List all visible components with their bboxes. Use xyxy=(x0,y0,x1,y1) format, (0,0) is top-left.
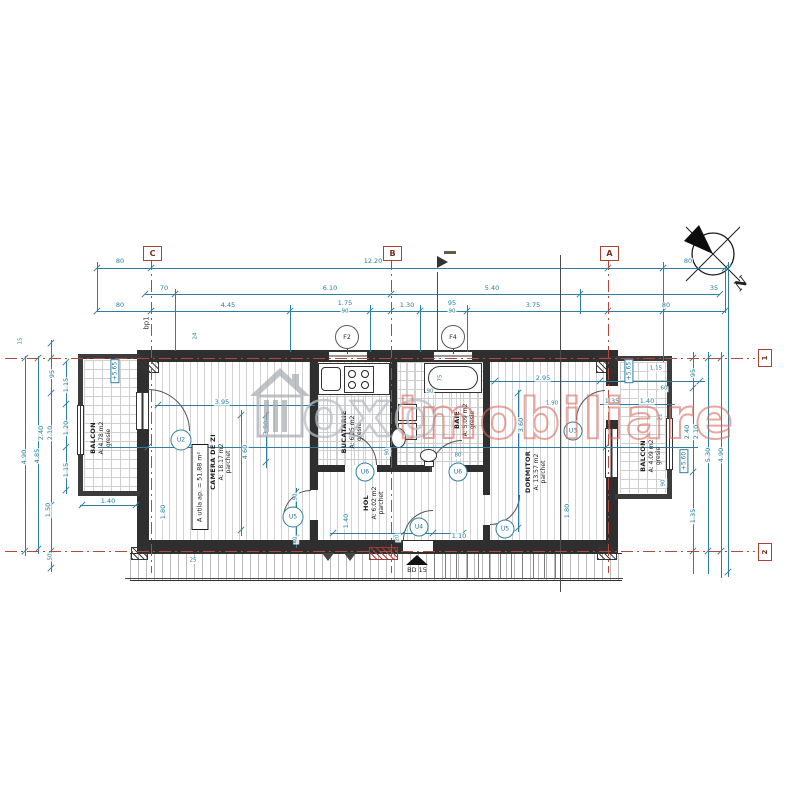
grid-axis-2: 2 xyxy=(758,543,772,561)
level-marker: +5.65 xyxy=(110,359,119,383)
wall-hatch xyxy=(597,547,617,560)
section-flag-dash xyxy=(444,251,456,254)
dim-line xyxy=(175,289,176,351)
entrance-label: BD 15 xyxy=(407,567,427,574)
dim-label: 4.45 xyxy=(220,302,236,309)
room-finish: gresie xyxy=(105,429,112,447)
grid-axis-a: A xyxy=(600,246,619,261)
dim-label: 24 xyxy=(193,332,199,341)
dim-label: 1.80 xyxy=(564,503,571,519)
room-area: A: 13.57 m2 xyxy=(533,454,540,491)
dim-label: 2.40 xyxy=(38,425,45,441)
dim-label: 90 xyxy=(341,309,350,315)
opening-tag: U6 xyxy=(449,463,468,482)
dim-label: 2.10 xyxy=(47,425,54,441)
section-flag-icon xyxy=(437,256,448,268)
grid-axis-1: 1 xyxy=(758,349,772,367)
dim-line xyxy=(125,578,623,579)
dim-label: 1.20 xyxy=(63,420,70,436)
room-finish: parchet xyxy=(540,461,547,484)
wall xyxy=(137,350,149,553)
dim-label: 95 xyxy=(447,300,457,307)
dim-label: 4.85 xyxy=(34,448,41,464)
dim-label: 6.10 xyxy=(322,285,338,292)
window-f2 xyxy=(328,351,368,361)
room-name: BALCON xyxy=(90,422,98,454)
parapet xyxy=(615,494,672,499)
dim-label: 90 xyxy=(293,493,299,502)
balcony-window-left xyxy=(77,405,84,455)
dim-label: 20 xyxy=(395,534,401,543)
dim-label: 4.90 xyxy=(21,449,28,465)
opening-tag: U4 xyxy=(410,518,429,537)
dim-label: 1.50 xyxy=(45,502,52,518)
opening-tag: U5 xyxy=(496,520,515,539)
dim-line xyxy=(97,262,98,312)
grid-axis-c: C xyxy=(143,246,162,261)
dim-label: 1.35 xyxy=(690,508,697,524)
dim-label: 1.15 xyxy=(649,366,663,372)
dim-label: 90 xyxy=(448,309,457,315)
entrance-arrow-icon xyxy=(406,555,428,565)
watermark-text-red: imobiliare xyxy=(398,392,735,448)
wall-hatch xyxy=(131,547,148,560)
opening-tag: U6 xyxy=(356,463,375,482)
dim-line xyxy=(241,410,242,536)
dim-line xyxy=(370,305,371,352)
level-marker: +5.60 xyxy=(679,449,688,473)
wall xyxy=(318,465,345,472)
foundation-label: bp1 xyxy=(144,316,151,329)
dim-line xyxy=(663,262,664,362)
dim-line xyxy=(97,311,725,312)
grid-axis-line xyxy=(5,551,755,552)
apartment-area-box: A utila ap. = 51.88 m² xyxy=(192,444,209,530)
dim-label: 1.80 xyxy=(160,504,167,520)
dim-label: 5.40 xyxy=(484,285,500,292)
room-area: A: 18.17 m2 xyxy=(218,444,225,481)
downspout-icon xyxy=(322,553,334,561)
dim-label: 12.20 xyxy=(363,258,384,265)
dim-label: 90 xyxy=(661,479,667,488)
stair-treads xyxy=(434,554,560,578)
opening-tag: U2 xyxy=(171,430,192,451)
opening-tag: U5 xyxy=(283,507,304,528)
room-name: DORMITOR xyxy=(525,451,533,493)
dim-line xyxy=(145,294,720,295)
dim-label: 50 xyxy=(48,553,54,562)
dim-line xyxy=(721,352,722,578)
dim-label: 1.40 xyxy=(343,513,350,529)
room-finish: parchet xyxy=(378,492,385,515)
dim-line xyxy=(420,305,421,352)
dim-label: 1.15 xyxy=(63,377,70,393)
wall xyxy=(483,525,490,540)
dim-label: 80 xyxy=(661,302,671,309)
dim-line xyxy=(97,268,725,269)
dim-label: 25 xyxy=(189,558,198,564)
dim-label: 1.75 xyxy=(337,300,353,307)
wall xyxy=(310,520,318,540)
room-area: A: 4.78 m2 xyxy=(98,422,105,455)
dim-label: 3.75 xyxy=(525,302,541,309)
dim-line xyxy=(437,272,438,352)
opening-tag: F4 xyxy=(441,325,465,349)
wall-hatch-red xyxy=(369,547,398,560)
room-label-dormitor: DORMITOR A: 13.57 m2 parchet xyxy=(525,451,547,493)
dim-label: 1.10 xyxy=(451,533,467,540)
room-label-hol: HOL A: 6.02 m2 parchet xyxy=(363,487,385,520)
dim-label: 4.60 xyxy=(242,444,249,460)
dim-label: 2.95 xyxy=(535,375,551,382)
dim-label: 80 xyxy=(115,302,125,309)
dim-label: 1.15 xyxy=(63,462,70,478)
toilet-tank xyxy=(424,461,434,467)
downspout-icon xyxy=(344,553,356,561)
floor-plan-canvas: BD 15 N C B A 1 2 bp1 BALCON A: 4.78 m2 … xyxy=(0,0,800,804)
dim-line xyxy=(725,268,726,313)
dim-line xyxy=(80,505,138,506)
dim-label: 95 xyxy=(690,368,697,378)
dim-label: 95 xyxy=(49,369,56,379)
stove-burner-icon xyxy=(361,370,369,378)
dim-line xyxy=(290,305,291,352)
dim-label: 80 xyxy=(115,258,125,265)
dim-label: 70 xyxy=(159,285,169,292)
dim-label: 3.95 xyxy=(214,399,230,406)
wall xyxy=(137,350,618,362)
dim-label: 40 xyxy=(293,536,299,545)
dim-line xyxy=(467,305,468,352)
parapet xyxy=(78,491,140,496)
dim-label: 1.30 xyxy=(399,302,415,309)
grid-axis-line xyxy=(151,258,152,573)
dim-label: 80 xyxy=(683,258,693,265)
dim-label: 80 xyxy=(454,453,463,459)
room-name: HOL xyxy=(363,495,371,511)
dim-label: 1.40 xyxy=(100,498,116,505)
stove-burner-icon xyxy=(348,370,356,378)
level-marker: +5.65 xyxy=(624,359,633,383)
room-finish: parchet xyxy=(225,451,232,474)
room-area: A: 6.02 m2 xyxy=(371,487,378,520)
opening-tag: F2 xyxy=(335,325,359,349)
balcony-door-left xyxy=(136,392,149,430)
room-name: CAMERA DE ZI xyxy=(210,434,218,490)
room-label-balcon-left: BALCON A: 4.78 m2 gresie xyxy=(90,422,112,455)
room-label-camera: CAMERA DE ZI A: 18.17 m2 parchet xyxy=(210,434,232,490)
dim-label: 15 xyxy=(18,337,24,346)
grid-axis-b: B xyxy=(383,246,402,261)
dim-label: 35 xyxy=(709,285,719,292)
